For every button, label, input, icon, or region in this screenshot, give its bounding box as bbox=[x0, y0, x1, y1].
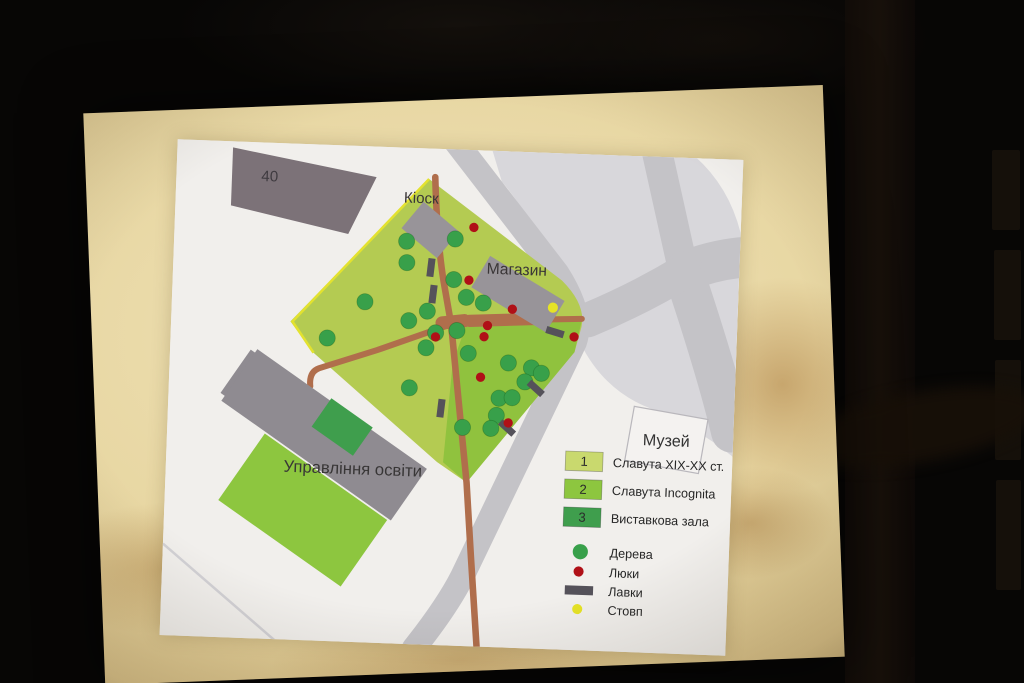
projected-slide: 40 К bbox=[83, 85, 844, 683]
legend-symbol-label: Дерева bbox=[609, 546, 654, 562]
tree bbox=[401, 379, 418, 396]
wall-poster bbox=[994, 250, 1021, 340]
tree bbox=[504, 389, 521, 406]
photo-of-projection: 40 К bbox=[0, 0, 1024, 683]
tree bbox=[454, 419, 471, 436]
tree bbox=[500, 355, 517, 372]
legend-zone-number: 1 bbox=[580, 454, 588, 469]
tree bbox=[475, 295, 492, 312]
legend-symbol-label: Лавки bbox=[608, 585, 643, 600]
tree bbox=[400, 312, 417, 329]
tree bbox=[445, 271, 462, 288]
tree bbox=[419, 303, 436, 320]
tree bbox=[418, 339, 435, 356]
legend-bench-icon bbox=[565, 585, 594, 595]
tree bbox=[460, 345, 477, 362]
wall-poster bbox=[992, 150, 1020, 230]
tree bbox=[482, 420, 499, 437]
wall-poster bbox=[996, 480, 1021, 590]
tree bbox=[533, 365, 550, 382]
legend-zone-number: 2 bbox=[579, 482, 587, 497]
tree bbox=[447, 231, 464, 248]
legend-symbol-label: Стовп bbox=[607, 604, 643, 619]
city-map: 40 К bbox=[160, 139, 744, 655]
tree bbox=[357, 293, 374, 310]
building-40-label: 40 bbox=[261, 168, 278, 186]
tree bbox=[319, 330, 336, 347]
museum-label: Музей bbox=[643, 431, 691, 451]
legend-zone-number: 3 bbox=[578, 510, 586, 525]
tree bbox=[458, 289, 475, 306]
map-panel: 40 К bbox=[160, 139, 744, 655]
legend-symbol-label: Люки bbox=[609, 566, 640, 581]
tree bbox=[449, 322, 466, 339]
shop-label: Магазин bbox=[486, 261, 547, 280]
kiosk-label: Кіоск bbox=[404, 189, 440, 207]
bookshelf-shadow bbox=[845, 0, 915, 683]
tree bbox=[398, 233, 415, 250]
tree bbox=[398, 254, 415, 271]
